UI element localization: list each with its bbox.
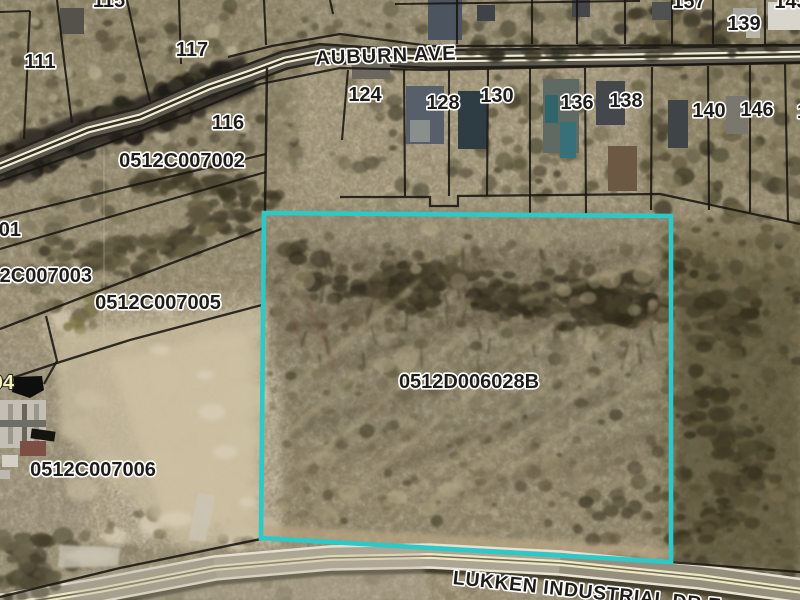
svg-text:143: 143: [774, 0, 800, 13]
svg-text:139: 139: [727, 13, 760, 35]
svg-text:0512C007003: 0512C007003: [0, 265, 92, 287]
svg-text:0512D006028B: 0512D006028B: [399, 371, 539, 393]
svg-text:0512C007005: 0512C007005: [95, 292, 221, 314]
svg-text:130: 130: [480, 85, 513, 107]
svg-text:157: 157: [672, 0, 705, 13]
svg-text:0512C007004: 0512C007004: [0, 372, 15, 394]
svg-text:116: 116: [212, 112, 244, 134]
svg-text:115: 115: [93, 0, 125, 12]
svg-text:0512C007001: 0512C007001: [0, 219, 21, 241]
svg-text:117: 117: [176, 39, 208, 61]
svg-text:140: 140: [692, 100, 725, 122]
svg-text:128: 128: [426, 92, 459, 114]
svg-text:146: 146: [740, 99, 773, 121]
svg-text:0512C007006: 0512C007006: [30, 459, 156, 481]
svg-text:136: 136: [560, 92, 593, 114]
svg-text:124: 124: [348, 84, 382, 106]
svg-text:138: 138: [609, 90, 642, 112]
svg-text:0512C007002: 0512C007002: [119, 150, 245, 172]
svg-text:111: 111: [24, 51, 55, 73]
